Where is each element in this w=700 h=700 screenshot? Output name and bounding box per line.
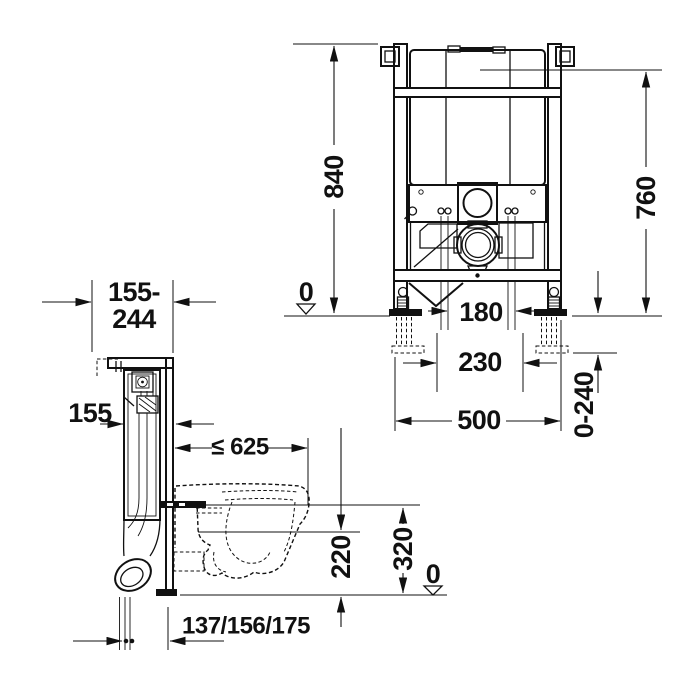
side-datum-zero-label: 0 [426, 559, 441, 589]
right-adjustable-foot [534, 288, 568, 354]
dim-220-label: 220 [326, 535, 356, 579]
front-floor-datum: 0 [284, 277, 390, 316]
dim-500-label: 500 [457, 405, 501, 435]
side-cistern [124, 370, 160, 536]
dim-wall-distance: 155- 244 [42, 277, 216, 353]
height-reference-lines [198, 505, 420, 532]
dim-137-156-175-label: 137/156/175 [182, 613, 310, 640]
wc-mounting-bracket [160, 501, 206, 508]
drain-pipe-centerlines [120, 597, 135, 650]
dim-155-244-line1: 155- [108, 277, 160, 307]
front-datum-zero-label: 0 [299, 277, 314, 307]
waste-connection [411, 221, 545, 273]
support-v-bracket [409, 283, 463, 306]
dim-bolt-spacing: 180 [428, 297, 535, 327]
dim-320-label: 320 [388, 527, 418, 571]
cistern [410, 46, 545, 185]
dim-0-240-label: 0-240 [569, 372, 599, 439]
dim-180-label: 180 [459, 297, 503, 327]
technical-drawing-page: 840 0 180 230 500 [0, 0, 700, 700]
dim-connection-spacing: 230 [403, 333, 557, 392]
dim-frame-width: 500 [395, 320, 561, 435]
dim-840-label: 840 [319, 155, 349, 199]
side-view: 0 155- 244 155 [42, 277, 447, 650]
installation-frame-drawing: 840 0 180 230 500 [0, 0, 700, 700]
dim-height-220: 220 [326, 428, 356, 627]
toilet-bowl-outline [174, 484, 309, 578]
dim-foot-adjustment: 0-240 [569, 271, 617, 438]
dim-625-label: ≤ 625 [211, 434, 269, 461]
dim-max-projection: ≤ 625 [175, 434, 308, 506]
dim-230-label: 230 [458, 347, 502, 377]
dim-frame-height: 840 [293, 44, 378, 313]
drain-elbow-neck [124, 518, 160, 556]
mounting-plate [405, 183, 547, 224]
upper-crossbar [394, 88, 561, 97]
dim-height-320: 320 [388, 508, 418, 593]
dim-155-244-line2: 244 [112, 304, 156, 334]
dim-760-label: 760 [631, 176, 661, 220]
crossbar-center-mark [475, 273, 479, 277]
front-view: 840 0 180 230 500 [284, 44, 662, 438]
dim-drain-offsets: 137/156/175 [73, 607, 310, 650]
drain-elbow [109, 553, 157, 598]
